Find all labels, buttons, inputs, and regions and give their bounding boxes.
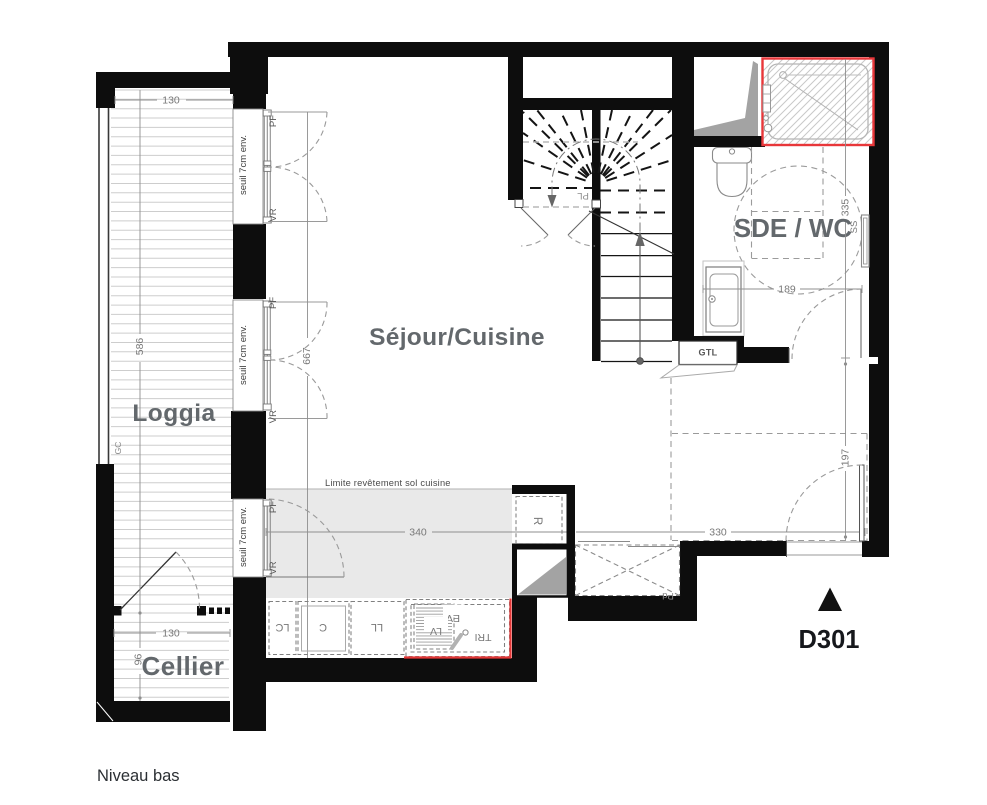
svg-text:Pd: Pd — [662, 590, 674, 601]
svg-text:D301: D301 — [799, 626, 860, 654]
svg-text:VR: VR — [268, 561, 279, 574]
svg-text:Séjour/Cuisine: Séjour/Cuisine — [369, 324, 545, 351]
svg-text:SDE / WC: SDE / WC — [734, 213, 853, 243]
svg-text:seuil 7cm env.: seuil 7cm env. — [238, 507, 249, 567]
svg-text:189: 189 — [778, 284, 796, 296]
svg-text:VR: VR — [268, 410, 279, 423]
svg-text:seuil 7cm env.: seuil 7cm env. — [238, 325, 249, 385]
svg-text:LC: LC — [275, 621, 289, 633]
svg-text:586: 586 — [134, 338, 146, 356]
svg-text:TRI: TRI — [475, 631, 492, 643]
svg-text:130: 130 — [162, 95, 180, 107]
svg-text:335: 335 — [840, 199, 852, 217]
svg-text:340: 340 — [409, 527, 427, 539]
svg-text:LL: LL — [371, 621, 383, 633]
svg-text:R: R — [531, 517, 543, 525]
svg-text:SS: SS — [849, 221, 860, 234]
svg-text:VR: VR — [268, 208, 279, 221]
svg-text:PF: PF — [268, 501, 279, 513]
svg-text:Loggia: Loggia — [132, 400, 215, 427]
svg-text:GTL: GTL — [699, 348, 718, 358]
svg-text:PF: PF — [268, 115, 279, 127]
svg-text:667: 667 — [301, 347, 313, 365]
svg-text:Cellier: Cellier — [142, 651, 225, 681]
svg-text:PF: PF — [268, 297, 279, 309]
svg-text:LV: LV — [430, 625, 442, 637]
svg-text:Niveau bas: Niveau bas — [97, 767, 180, 785]
svg-text:PL: PL — [577, 190, 589, 201]
svg-text:EV: EV — [446, 612, 460, 624]
svg-text:130: 130 — [162, 628, 180, 640]
svg-text:seuil 7cm env.: seuil 7cm env. — [238, 135, 249, 195]
svg-text:330: 330 — [709, 527, 727, 539]
svg-text:C: C — [319, 621, 327, 633]
svg-text:197: 197 — [840, 449, 852, 467]
svg-text:GC: GC — [113, 442, 123, 455]
svg-text:Limite revêtement sol cuisine: Limite revêtement sol cuisine — [325, 478, 451, 488]
